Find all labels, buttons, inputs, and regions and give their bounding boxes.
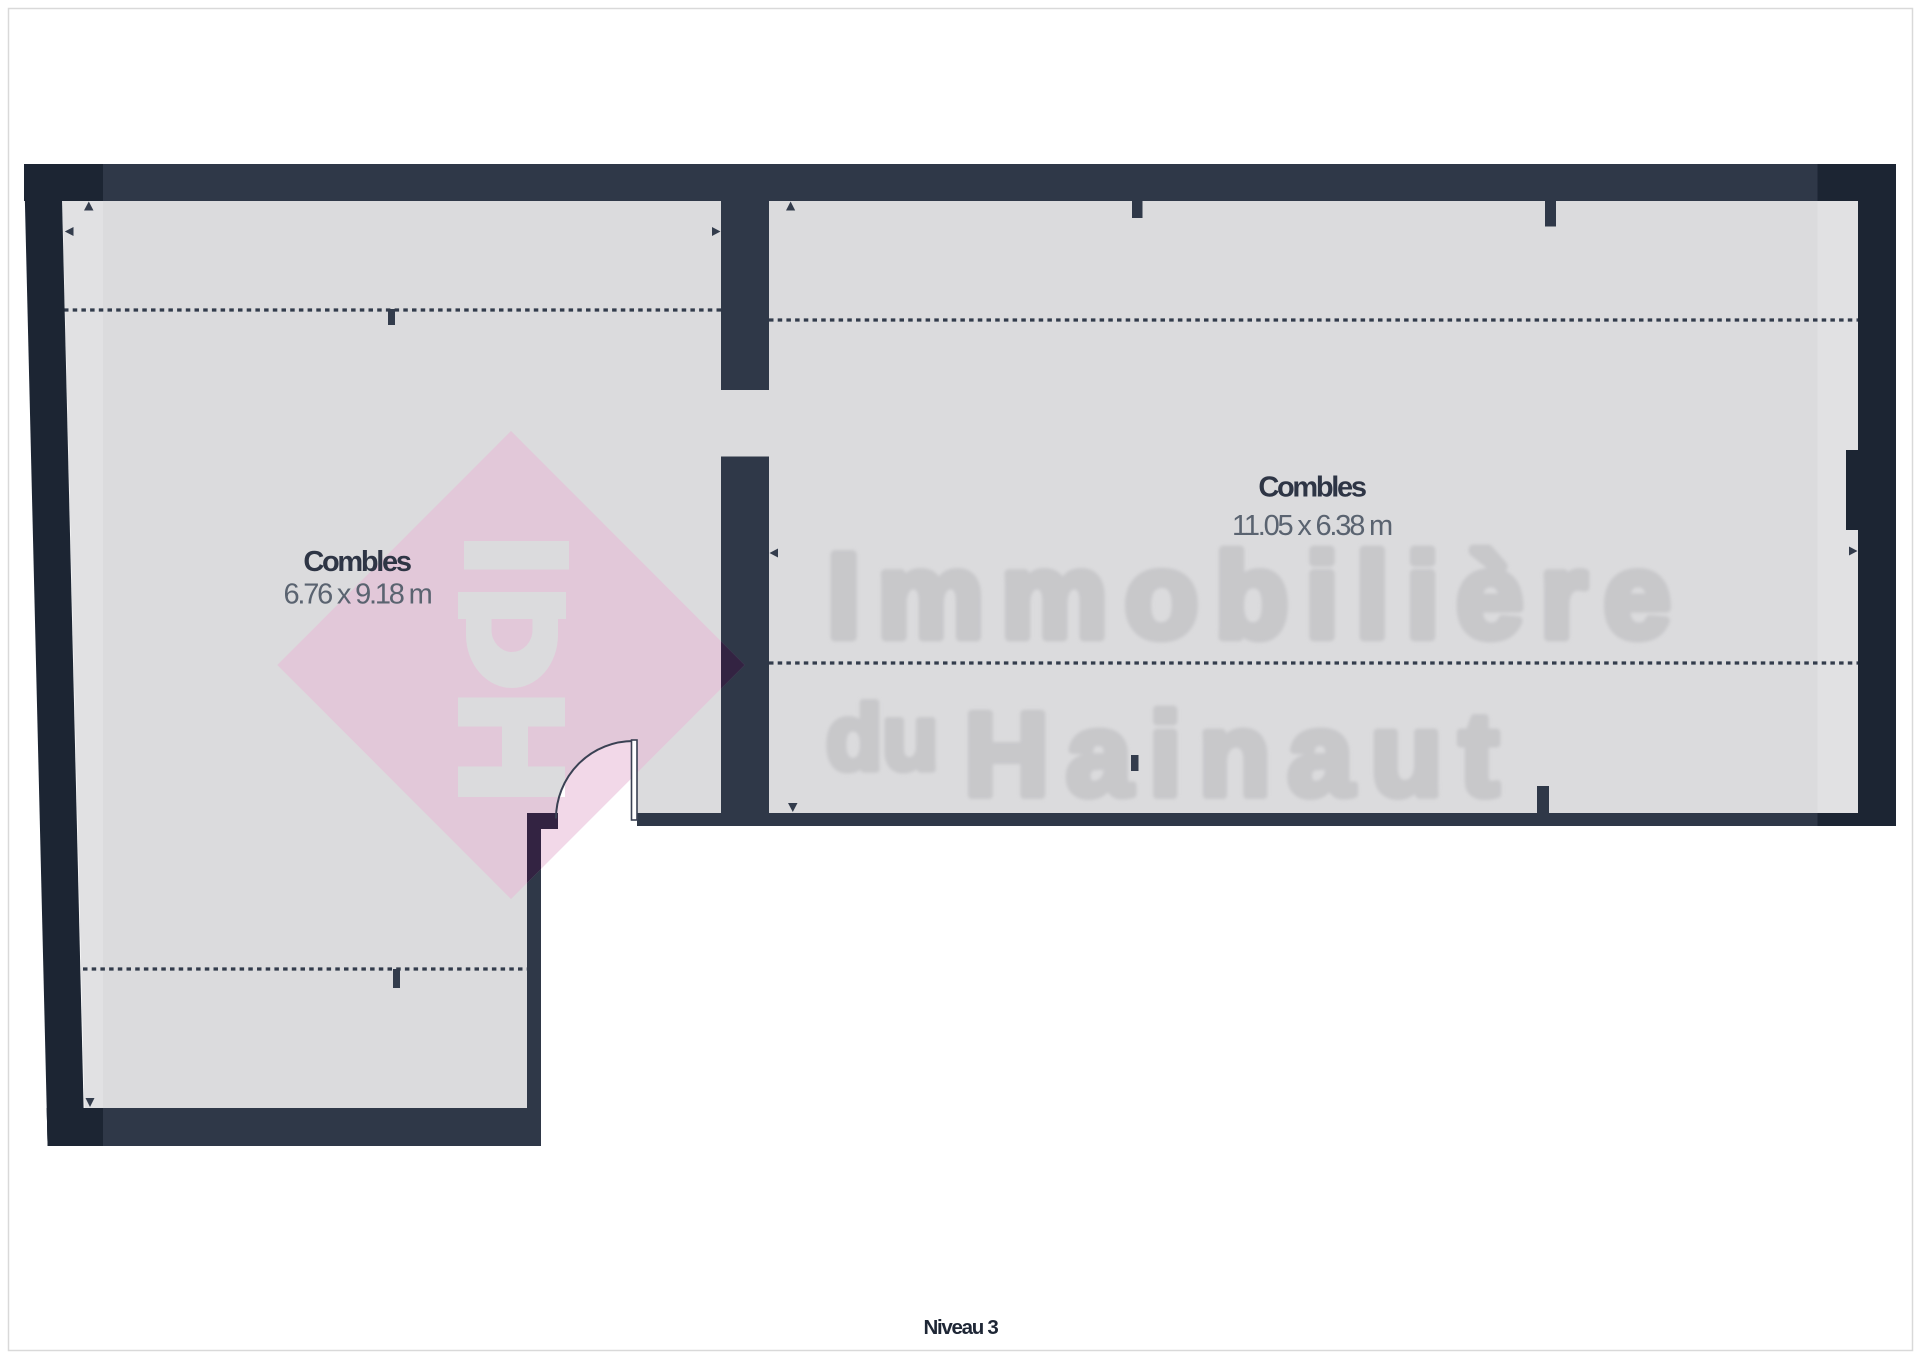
svg-text:du: du: [826, 687, 938, 789]
svg-text:6.76 x 9.18 m: 6.76 x 9.18 m: [283, 579, 431, 611]
svg-text:11.05 x 6.38 m: 11.05 x 6.38 m: [1232, 510, 1392, 542]
svg-text:Niveau 3: Niveau 3: [924, 1316, 999, 1339]
svg-text:Combles: Combles: [1258, 472, 1366, 504]
svg-text:Hainaut: Hainaut: [964, 689, 1516, 821]
svg-text:Combles: Combles: [303, 546, 411, 578]
svg-text:Immobilière: Immobilière: [827, 529, 1688, 663]
